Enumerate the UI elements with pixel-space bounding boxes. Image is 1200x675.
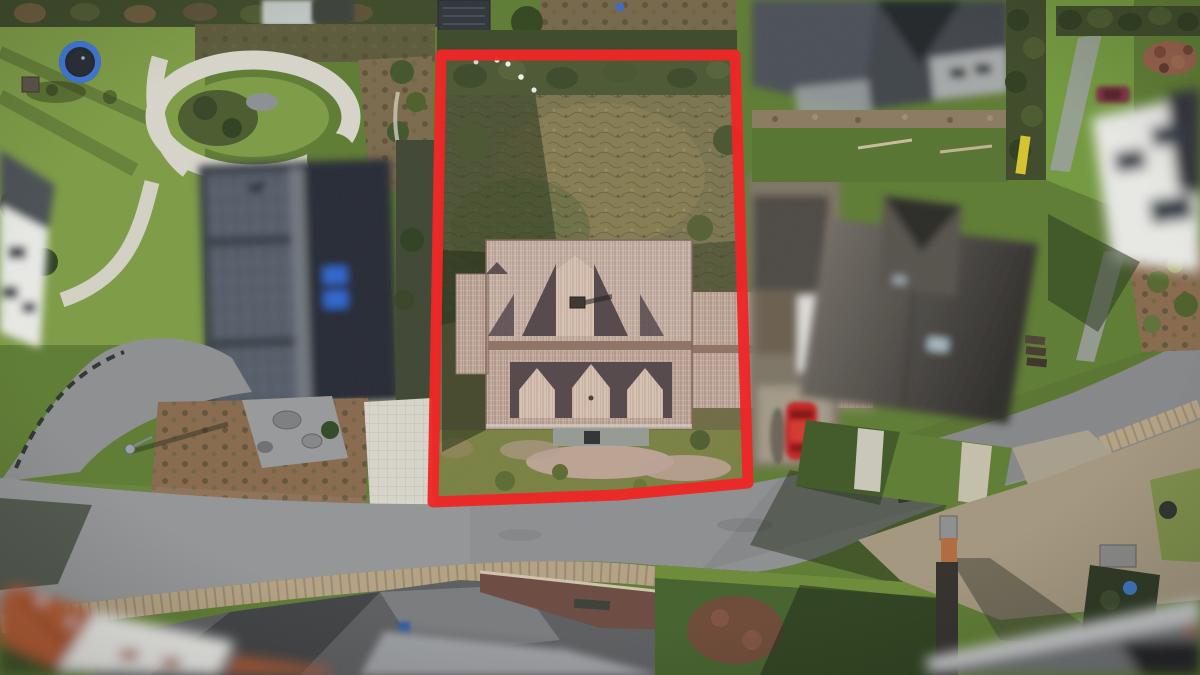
vignette bbox=[0, 0, 1200, 675]
aerial-photo-scene bbox=[0, 0, 1200, 675]
